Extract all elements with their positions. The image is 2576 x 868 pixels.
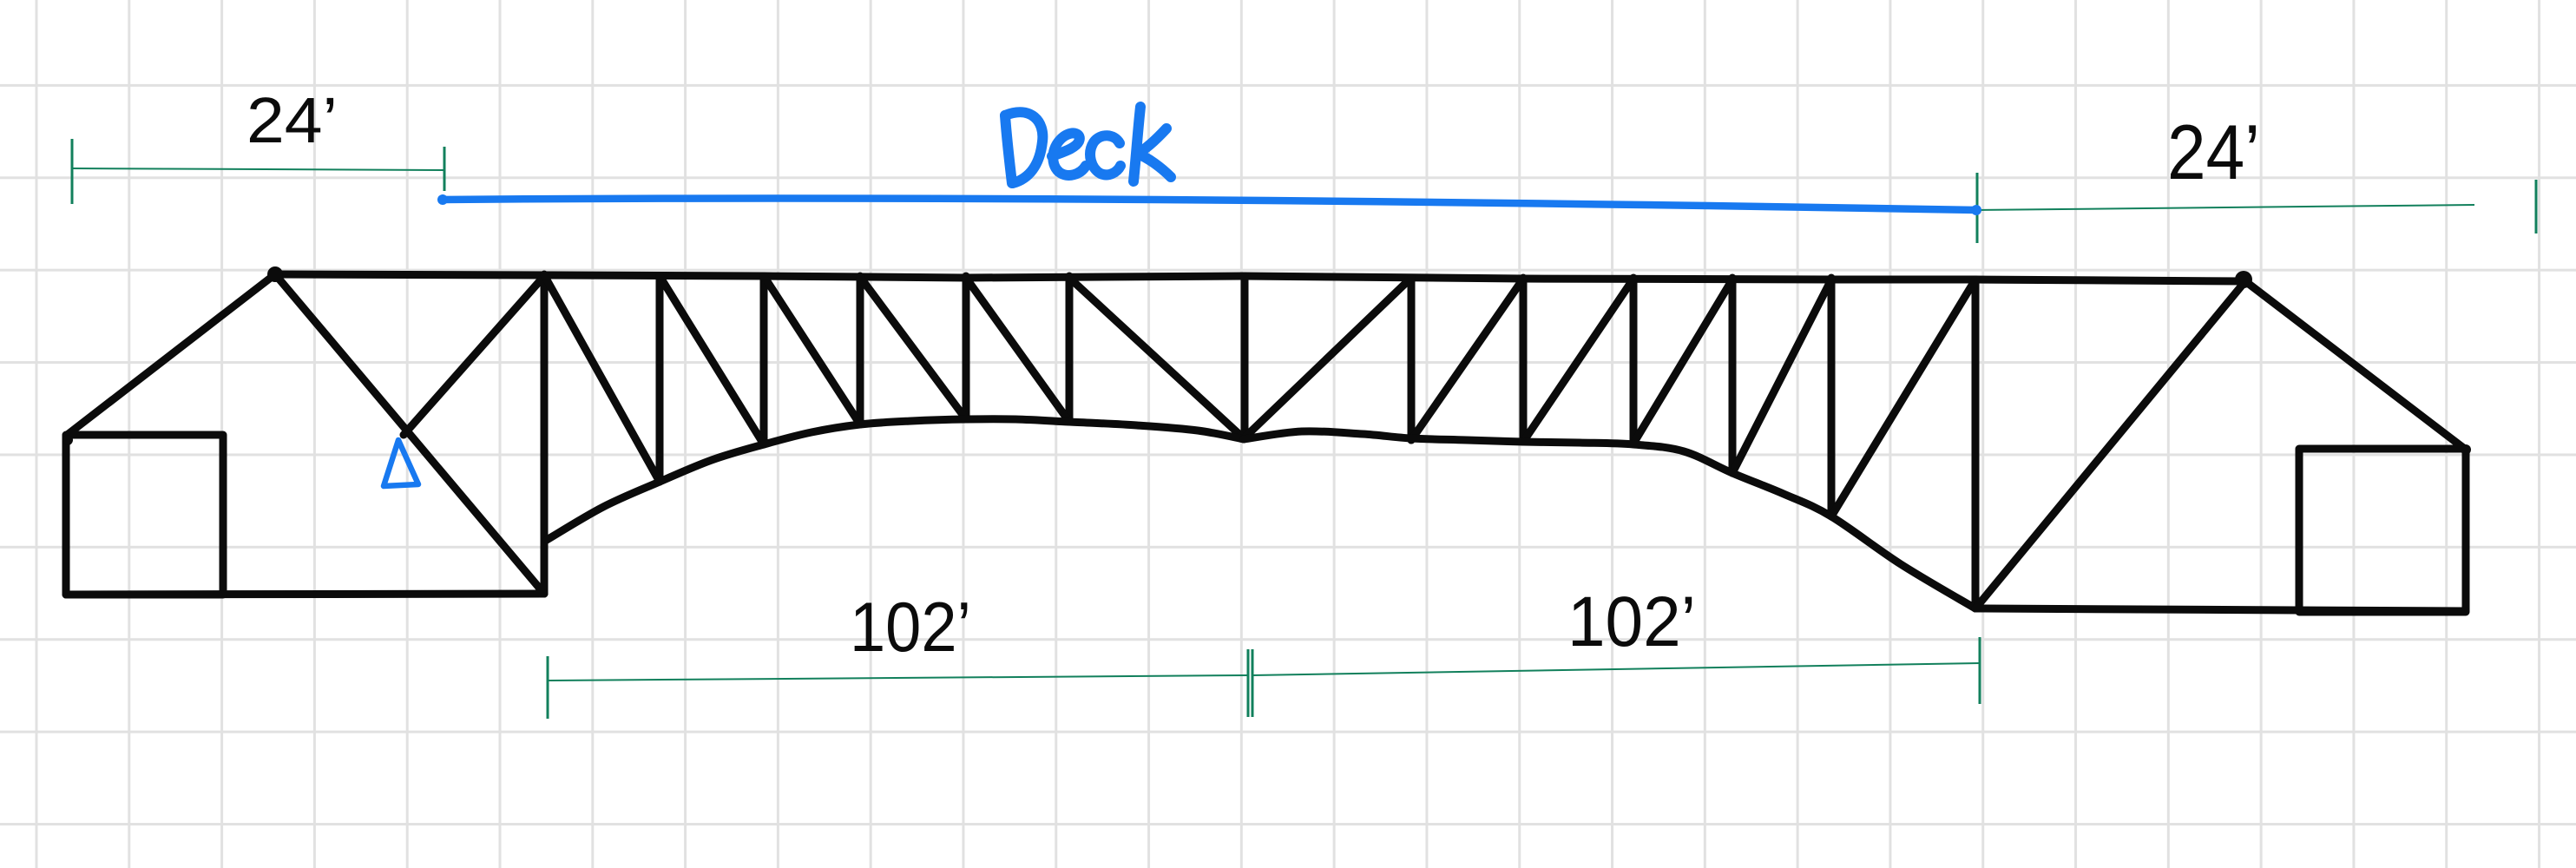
svg-text:102’: 102’ <box>850 589 971 667</box>
svg-text:102’: 102’ <box>1567 582 1696 661</box>
svg-text:24’: 24’ <box>246 84 338 156</box>
svg-text:24’: 24’ <box>2167 108 2260 195</box>
